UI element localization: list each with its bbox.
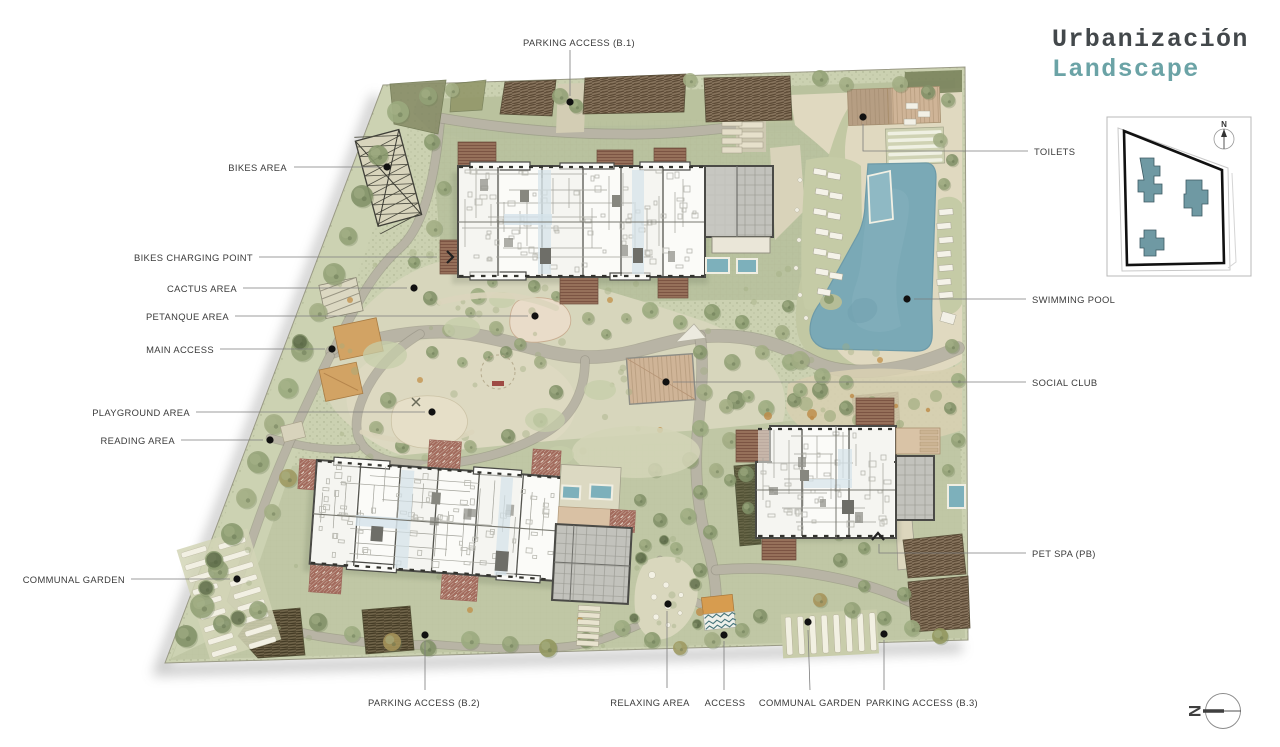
svg-text:COMMUNAL GARDEN: COMMUNAL GARDEN [23, 574, 125, 585]
svg-text:PETANQUE AREA: PETANQUE AREA [146, 311, 229, 322]
svg-text:BIKES CHARGING POINT: BIKES CHARGING POINT [134, 252, 253, 263]
svg-text:PARKING ACCESS (B.2): PARKING ACCESS (B.2) [368, 697, 480, 708]
svg-text:PARKING ACCESS (B.1): PARKING ACCESS (B.1) [523, 37, 635, 48]
svg-text:CACTUS AREA: CACTUS AREA [167, 283, 237, 294]
svg-text:TOILETS: TOILETS [1034, 146, 1075, 157]
svg-text:PARKING ACCESS (B.3): PARKING ACCESS (B.3) [866, 697, 978, 708]
svg-text:READING AREA: READING AREA [100, 435, 175, 446]
svg-text:Urbanización: Urbanización [1052, 25, 1249, 54]
svg-text:SWIMMING POOL: SWIMMING POOL [1032, 294, 1115, 305]
svg-text:SOCIAL CLUB: SOCIAL CLUB [1032, 377, 1098, 388]
svg-text:N: N [1185, 705, 1204, 717]
svg-text:ACCESS: ACCESS [705, 697, 746, 708]
svg-text:COMMUNAL GARDEN: COMMUNAL GARDEN [759, 697, 861, 708]
svg-text:PET SPA (PB): PET SPA (PB) [1032, 548, 1096, 559]
svg-text:Landscape: Landscape [1052, 55, 1200, 84]
svg-text:PLAYGROUND AREA: PLAYGROUND AREA [92, 407, 190, 418]
svg-text:N: N [1221, 120, 1227, 129]
svg-text:RELAXING AREA: RELAXING AREA [610, 697, 690, 708]
svg-text:BIKES AREA: BIKES AREA [228, 162, 287, 173]
svg-text:MAIN ACCESS: MAIN ACCESS [146, 344, 214, 355]
